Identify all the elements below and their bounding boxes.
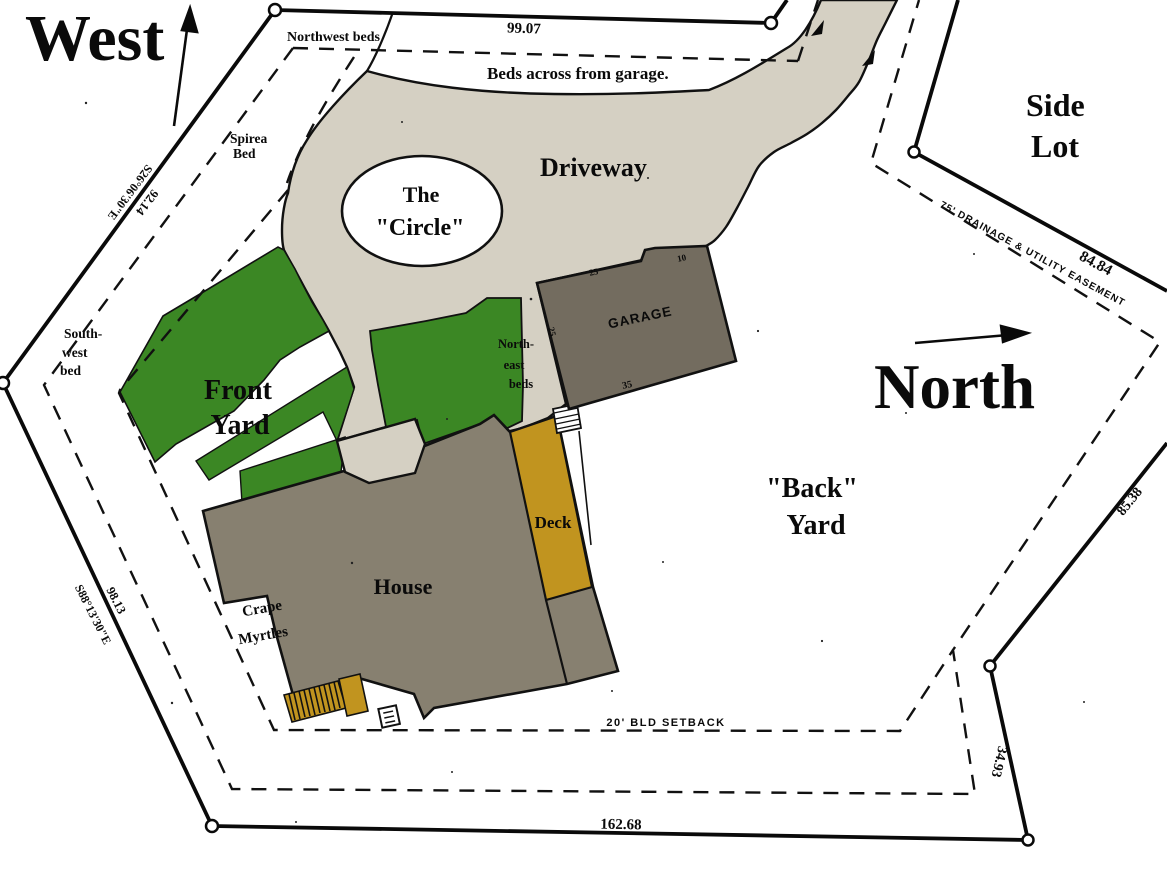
svg-text:The: The — [403, 182, 440, 207]
svg-text:west: west — [62, 345, 88, 360]
svg-text:99.07: 99.07 — [507, 20, 542, 37]
svg-text:Yard: Yard — [210, 410, 270, 441]
svg-text:162.68: 162.68 — [600, 817, 642, 834]
svg-text:Beds across from garage.: Beds across from garage. — [487, 64, 669, 83]
svg-text:20' BLD SETBACK: 20' BLD SETBACK — [606, 717, 725, 729]
svg-text:beds: beds — [509, 377, 533, 391]
svg-text:West: West — [25, 2, 164, 75]
svg-text:Lot: Lot — [1031, 128, 1079, 164]
svg-text:Deck: Deck — [535, 513, 572, 532]
svg-text:Bed: Bed — [233, 146, 256, 161]
svg-text:North-: North- — [498, 337, 534, 351]
svg-text:east: east — [504, 358, 526, 372]
svg-text:Driveway: Driveway — [540, 153, 647, 182]
svg-text:Front: Front — [204, 375, 273, 406]
svg-text:Spirea: Spirea — [230, 131, 268, 146]
svg-text:South-: South- — [64, 326, 102, 341]
svg-text:bed: bed — [60, 363, 82, 378]
svg-text:Side: Side — [1026, 87, 1085, 123]
svg-text:Northwest beds: Northwest beds — [287, 30, 380, 45]
svg-text:House: House — [374, 574, 433, 599]
svg-text:"Back": "Back" — [766, 473, 858, 504]
svg-text:North: North — [874, 352, 1035, 422]
svg-text:"Circle": "Circle" — [376, 215, 465, 241]
svg-text:Yard: Yard — [786, 510, 846, 541]
